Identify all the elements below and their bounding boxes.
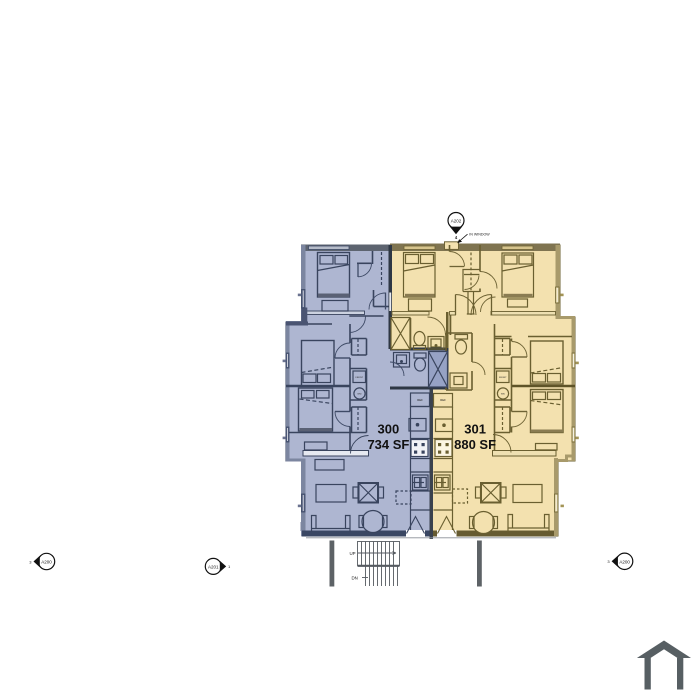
svg-text:734 SF: 734 SF <box>367 437 409 452</box>
svg-text:880 SF: 880 SF <box>454 437 496 452</box>
svg-text:IN WINDOW: IN WINDOW <box>469 232 490 236</box>
svg-text:A200: A200 <box>41 560 52 565</box>
svg-text:REF: REF <box>440 398 446 402</box>
svg-text:A200: A200 <box>619 559 630 564</box>
svg-text:REF: REF <box>417 398 423 402</box>
svg-text:300: 300 <box>378 422 400 437</box>
svg-text:A201: A201 <box>208 564 219 569</box>
svg-text:FRONT: FRONT <box>356 377 364 379</box>
svg-text:UP: UP <box>350 551 356 556</box>
svg-text:301: 301 <box>464 422 486 437</box>
svg-text:W/D: W/D <box>501 394 506 396</box>
svg-text:W/D: W/D <box>357 394 362 396</box>
svg-text:DN: DN <box>352 575 358 580</box>
svg-text:FRONT: FRONT <box>499 377 507 379</box>
svg-text:A202: A202 <box>451 219 462 224</box>
